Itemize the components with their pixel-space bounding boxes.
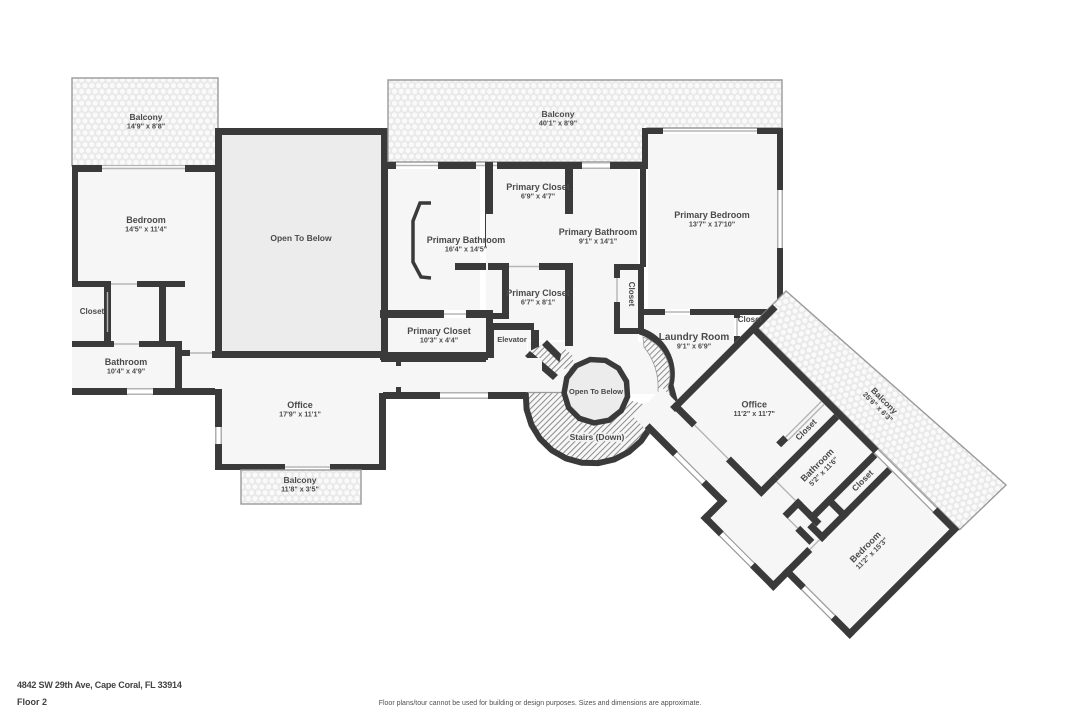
svg-text:Primary Closet: Primary Closet xyxy=(506,182,570,192)
svg-text:10'3" x 4'4": 10'3" x 4'4" xyxy=(420,336,458,345)
svg-text:10'4" x 4'9": 10'4" x 4'9" xyxy=(107,367,145,376)
svg-text:Bedroom: Bedroom xyxy=(126,215,166,225)
svg-text:Balcony: Balcony xyxy=(129,112,162,122)
svg-text:17'9" x 11'1": 17'9" x 11'1" xyxy=(279,410,321,419)
svg-text:Primary Closet: Primary Closet xyxy=(407,326,471,336)
svg-text:14'9" x 8'8": 14'9" x 8'8" xyxy=(127,122,165,131)
svg-text:Office: Office xyxy=(287,400,313,410)
svg-text:6'9" x 4'7": 6'9" x 4'7" xyxy=(521,192,555,201)
svg-text:14'5" x 11'4": 14'5" x 11'4" xyxy=(125,225,167,234)
svg-text:Elevator: Elevator xyxy=(497,335,527,344)
svg-text:Open To Below: Open To Below xyxy=(270,233,332,243)
svg-text:Balcony: Balcony xyxy=(283,475,316,485)
svg-text:Primary Bathroom: Primary Bathroom xyxy=(427,235,506,245)
svg-text:9'1" x 14'1": 9'1" x 14'1" xyxy=(579,237,617,246)
svg-text:Closet: Closet xyxy=(80,307,105,316)
svg-text:Stairs (Down): Stairs (Down) xyxy=(570,432,625,442)
svg-text:Balcony: Balcony xyxy=(541,109,574,119)
svg-text:16'4" x 14'5": 16'4" x 14'5" xyxy=(445,245,487,254)
svg-text:Primary Closet: Primary Closet xyxy=(506,288,570,298)
svg-text:Primary Bathroom: Primary Bathroom xyxy=(559,227,638,237)
svg-text:Open To Below: Open To Below xyxy=(569,387,623,396)
svg-text:9'1" x 6'9": 9'1" x 6'9" xyxy=(677,342,711,351)
svg-text:40'1" x 8'9": 40'1" x 8'9" xyxy=(539,119,577,128)
svg-text:Primary Bedroom: Primary Bedroom xyxy=(674,210,750,220)
svg-text:Office: Office xyxy=(741,400,767,410)
svg-text:Closet: Closet xyxy=(738,315,763,324)
svg-text:13'7" x 17'10": 13'7" x 17'10" xyxy=(689,220,735,229)
svg-text:11'8" x 3'5": 11'8" x 3'5" xyxy=(281,485,319,494)
svg-text:Closet: Closet xyxy=(627,282,636,307)
svg-text:6'7" x 8'1": 6'7" x 8'1" xyxy=(521,298,555,307)
svg-text:11'2" x 11'7": 11'2" x 11'7" xyxy=(734,409,775,418)
svg-text:Bathroom: Bathroom xyxy=(105,357,148,367)
